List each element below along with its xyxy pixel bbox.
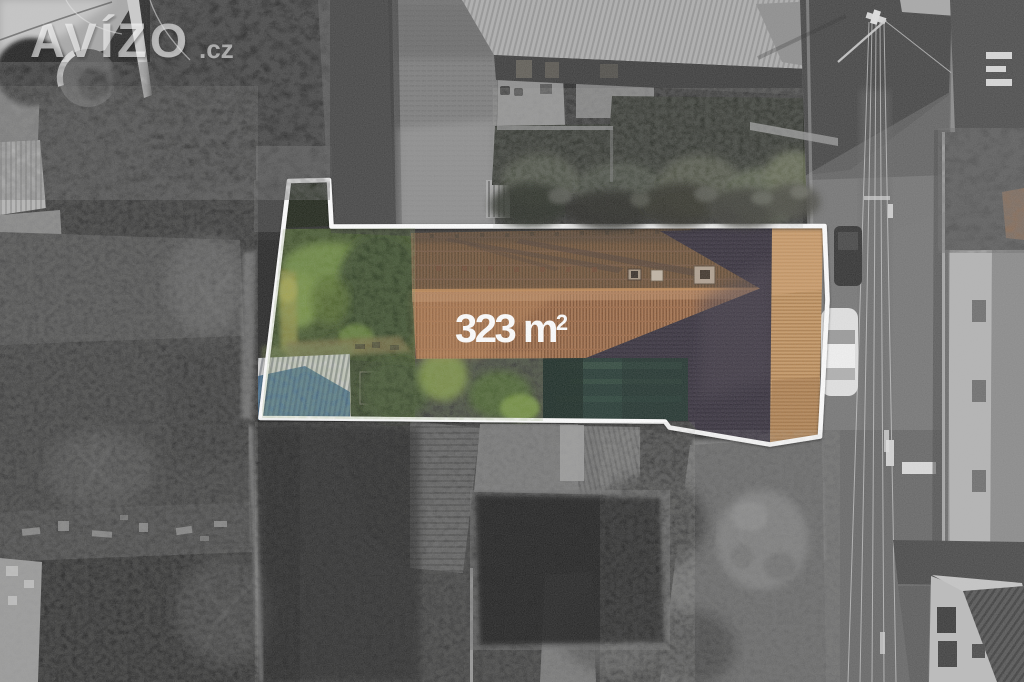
svg-text:.cz: .cz — [199, 34, 234, 64]
svg-text:AVÍZO: AVÍZO — [30, 14, 191, 68]
